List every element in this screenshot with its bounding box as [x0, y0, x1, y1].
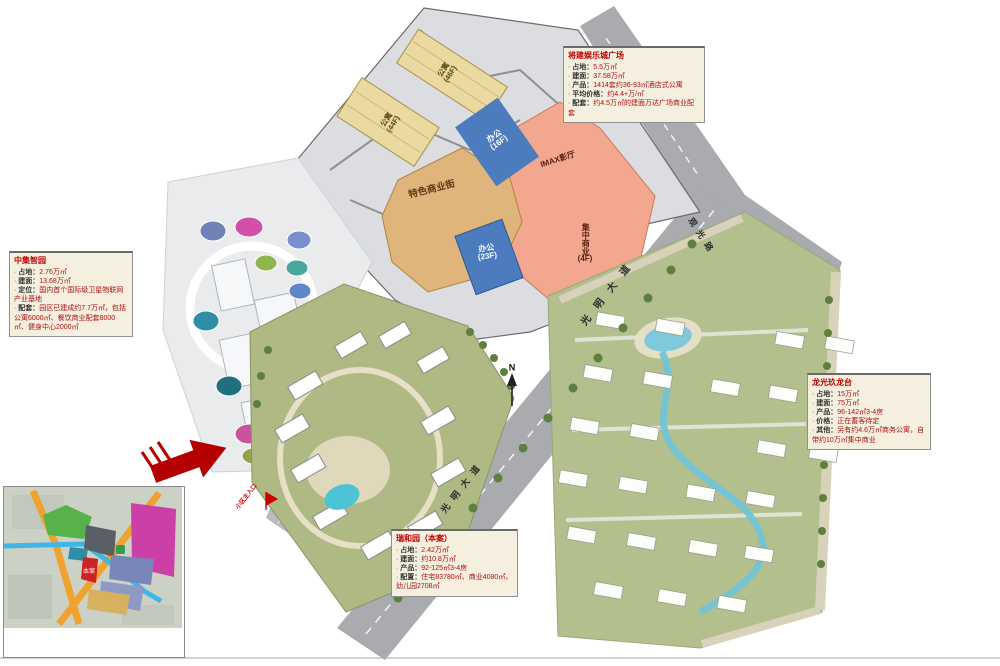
parcel-label-mall: 集中商业 (4F)	[578, 223, 593, 263]
locator-map: 本案	[3, 486, 185, 658]
infobox-bottom: 瑞和园（本案） 占地2.42万㎡ 建面约10.8万㎡ 产品92-125㎡3-4房…	[391, 529, 518, 597]
infobox-title: 中集智园	[14, 256, 128, 267]
infobox-title: 瑞和园（本案）	[396, 534, 513, 545]
infobox-right: 龙光玖龙台 占地15万㎡ 建面75万㎡ 产品96-142㎡3-4房 价格正在蓄客…	[807, 373, 931, 450]
infobox-title: 龙光玖龙台	[812, 378, 926, 389]
infobox-top-right: 将建娱乐城广场 占地5.5万㎡ 建面37.58万㎡ 产品1414套约36-93㎡…	[563, 46, 705, 123]
locator-map-graphic: 本案	[4, 487, 182, 655]
north-label: N	[509, 363, 516, 372]
master-plan-page: 公寓(46F) 公寓(44F) 办公(16F) 办公(23F) IMAX影厅 集…	[0, 0, 1000, 666]
infobox-title: 将建娱乐城广场	[568, 51, 700, 62]
locator-site-label: 本案	[83, 567, 95, 575]
infobox-left: 中集智园 占地2.76万㎡ 建面13.68万㎡ 定位国内首个国际级卫星物联网产业…	[9, 251, 133, 337]
